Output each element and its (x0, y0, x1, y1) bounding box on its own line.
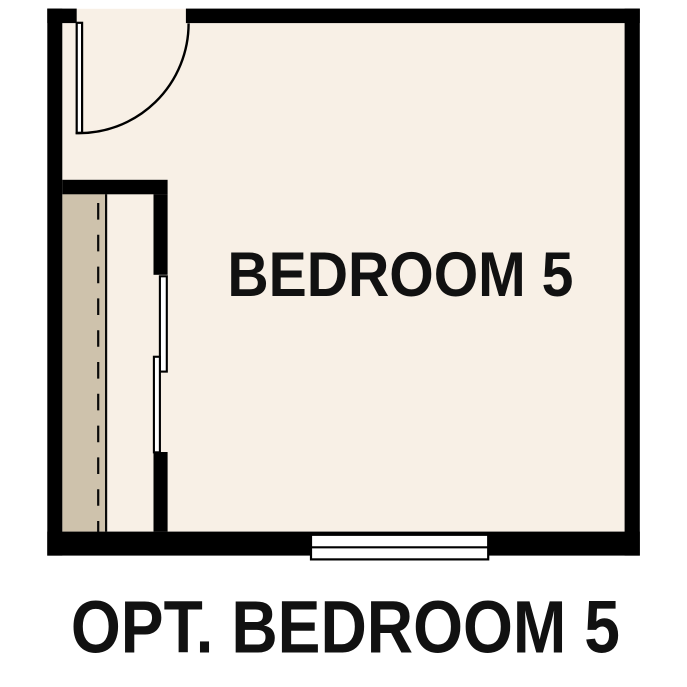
svg-text:BEDROOM 5: BEDROOM 5 (227, 240, 573, 310)
svg-text:OPT. BEDROOM 5: OPT. BEDROOM 5 (71, 586, 620, 669)
